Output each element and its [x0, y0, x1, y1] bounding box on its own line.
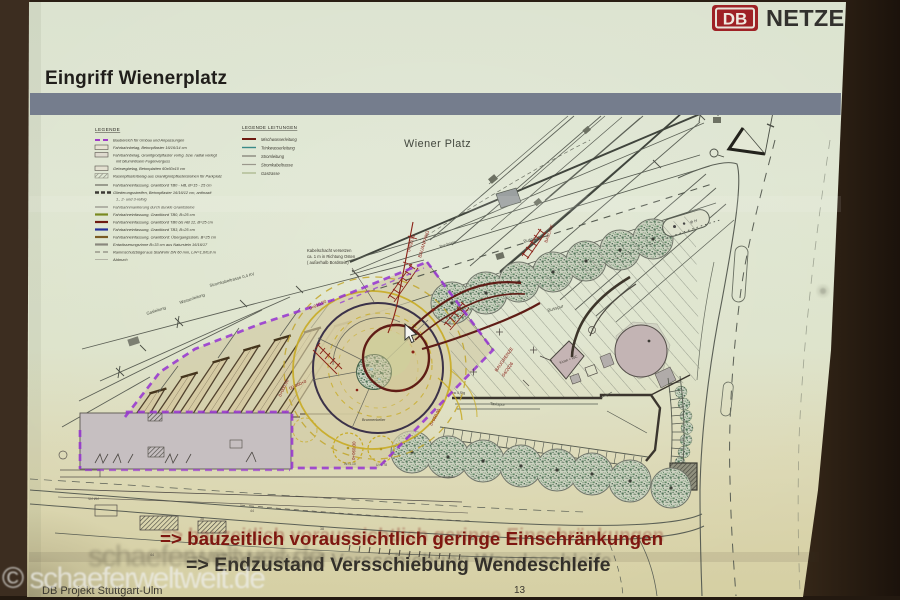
svg-text:mit bituminösem Fugenverguss: mit bituminösem Fugenverguss [116, 159, 170, 164]
svg-text:Abbruch: Abbruch [112, 257, 128, 262]
svg-text:LEGENDE: LEGENDE [95, 127, 120, 132]
svg-text:Fahrbahnbelag, Betonpflaster 1: Fahrbahnbelag, Betonpflaster 16/16/14 cm [113, 145, 188, 150]
svg-text:Baubereich für Umbau und Anpas: Baubereich für Umbau und Anpassungen [113, 138, 184, 143]
svg-text:Trinkwasserleitung: Trinkwasserleitung [261, 146, 296, 151]
svg-text:13: 13 [514, 585, 526, 596]
svg-text:Brunnenkeller: Brunnenkeller [362, 418, 386, 422]
svg-text:Gehwegbelag, Betonplatten 60x6: Gehwegbelag, Betonplatten 60x60x10 cm [113, 166, 186, 171]
svg-text:© schaeferweltweit.de: © schaeferweltweit.de [2, 562, 265, 595]
svg-text:Kabelschacht versetzen: Kabelschacht versetzen [307, 248, 352, 253]
svg-text:ca. 1 m in Richtung Osten: ca. 1 m in Richtung Osten [307, 254, 356, 259]
svg-text:Fahrbahneinfassung, Granitbord: Fahrbahneinfassung, Granitbord TB3, B=25… [113, 227, 196, 232]
svg-text:LEGENDE LEITUNGEN: LEGENDE LEITUNGEN [242, 125, 297, 130]
svg-text:DB: DB [723, 10, 748, 29]
svg-text:W=1.10: W=1.10 [344, 462, 356, 466]
svg-text:Stromleitung: Stromleitung [261, 154, 285, 159]
svg-text:Eingriff Wienerplatz: Eingriff Wienerplatz [45, 68, 227, 89]
svg-text:Rasenpflasterbelag aus Granitg: Rasenpflasterbelag aus Granitgroßpflaste… [113, 174, 222, 179]
svg-text:( außerhalb Bordstein): ( außerhalb Bordstein) [307, 260, 349, 265]
svg-text:Fahrbahnbelag, Granitgroßpflas: Fahrbahnbelag, Granitgroßpflaster vorhg.… [113, 153, 218, 158]
svg-text:Rammschutzbügel aus Stahlrohr: Rammschutzbügel aus Stahlrohr DN 60 mm, … [113, 250, 217, 255]
svg-text:Wiener Platz: Wiener Platz [404, 138, 471, 150]
svg-text:Fahrbahneinfassung, Granitbord: Fahrbahneinfassung, Granitbord TB0, B=25… [113, 212, 196, 217]
svg-text:Entwässerungsrinne B=33 cm aus: Entwässerungsrinne B=33 cm aus Naturstei… [113, 242, 208, 247]
svg-text:NETZE: NETZE [766, 5, 845, 31]
svg-text:Mischwasserleitung: Mischwasserleitung [261, 137, 297, 142]
svg-text:Fahrbahneinfassung, Granitbord: Fahrbahneinfassung, Granitbord: Übergang… [113, 235, 217, 240]
svg-text:Gliederungsstreifen, Betonpfla: Gliederungsstreifen, Betonpflaster 16/16… [113, 190, 212, 195]
svg-text:Fahrbahneinfassung, Granitbord: Fahrbahneinfassung, Granitbord TB0 bis H… [113, 220, 214, 225]
svg-text:0+060.00: 0+060.00 [351, 441, 357, 460]
svg-text:Stromkabeltrasse: Stromkabeltrasse [261, 163, 294, 168]
svg-text:Fahrbahneinfassung, Granitbord: Fahrbahneinfassung, Granitbord TB0 - HB,… [113, 183, 212, 188]
svg-text:Gastrasse: Gastrasse [261, 171, 280, 176]
